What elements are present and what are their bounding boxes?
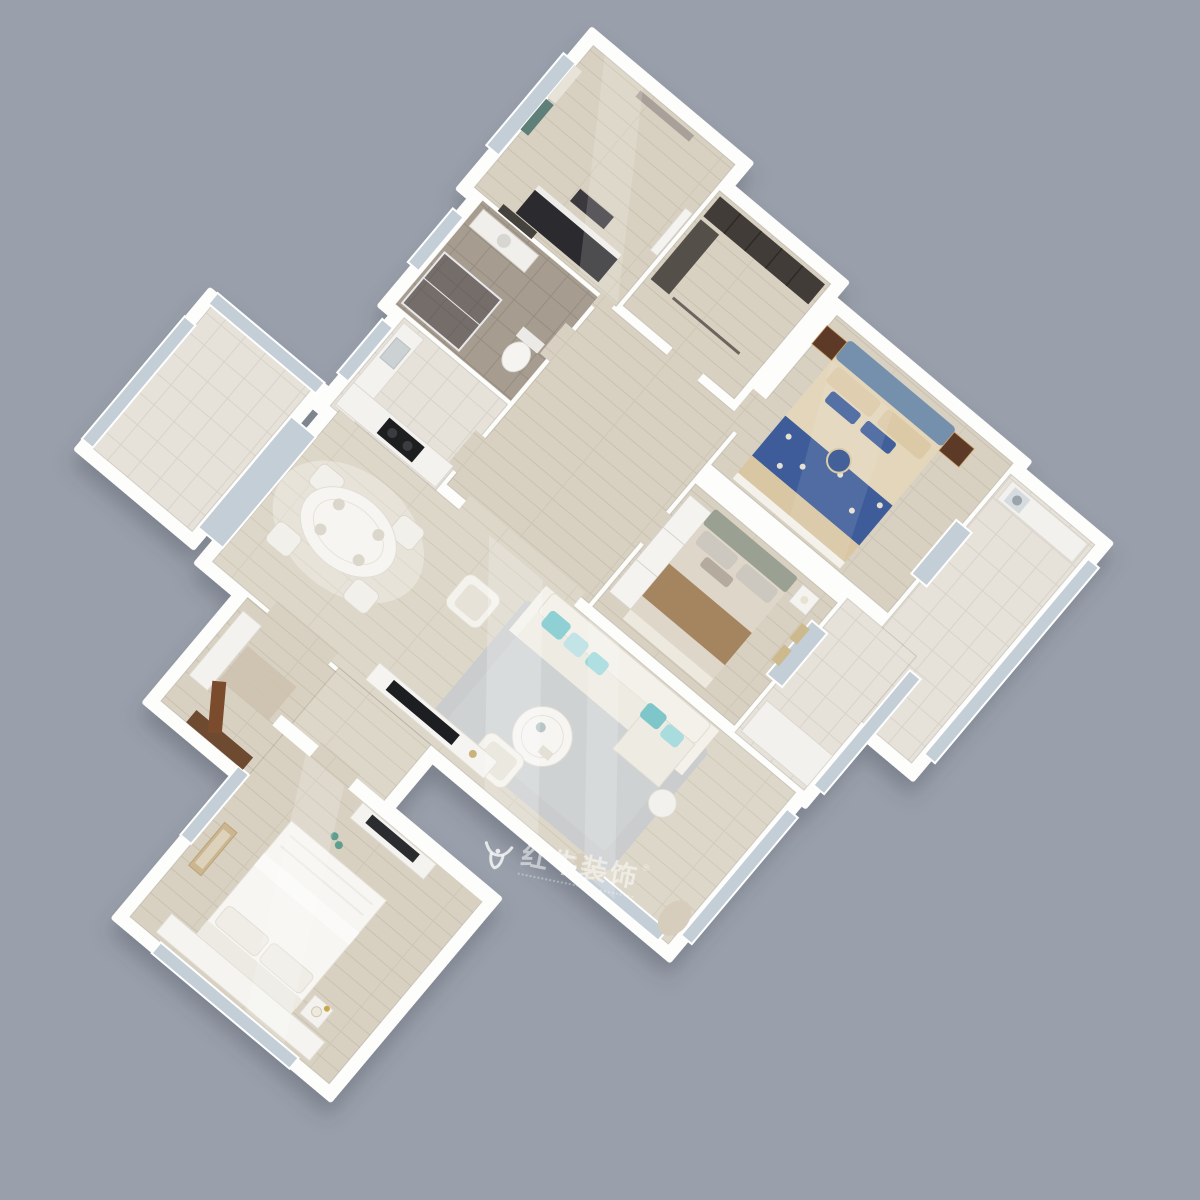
floorplan-render: 红牛装饰 ®	[0, 0, 1200, 1200]
floorplan-svg	[0, 0, 1200, 1200]
